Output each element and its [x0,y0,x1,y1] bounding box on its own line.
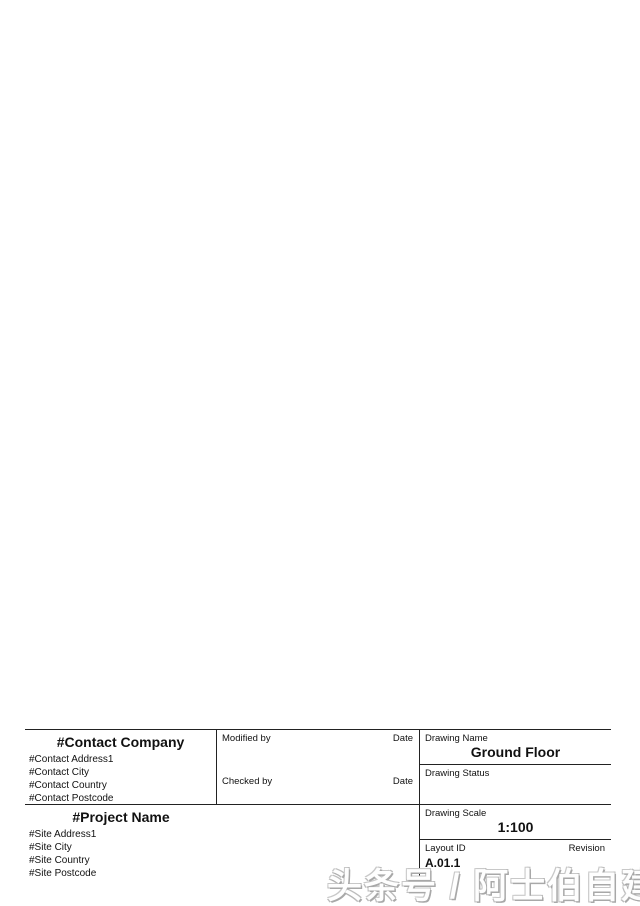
watermark-text: 头条号 / 阿士伯自建房 [327,858,640,906]
drawing-sheet-page: 上 下 ✳ [0,0,640,906]
